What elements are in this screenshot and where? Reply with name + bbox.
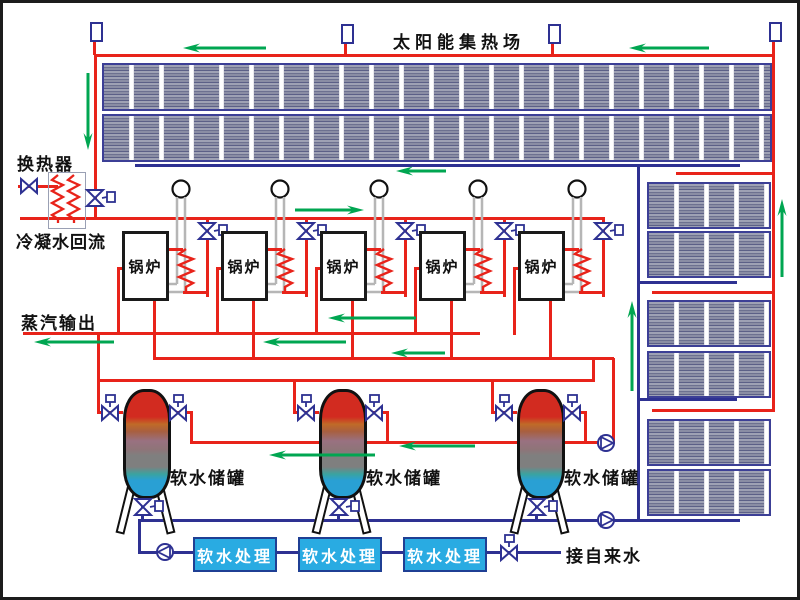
diagram-border xyxy=(0,0,800,600)
diagram-canvas: 太阳能集热场 xyxy=(0,0,800,600)
